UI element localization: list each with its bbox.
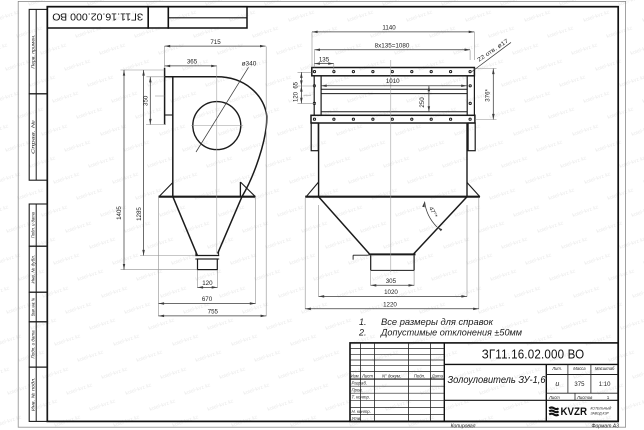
- svg-text:65: 65: [293, 81, 299, 88]
- svg-text:250: 250: [419, 97, 426, 108]
- svg-text:1: 1: [607, 395, 610, 400]
- svg-text:Т. контр.: Т. контр.: [352, 395, 371, 400]
- svg-text:Инв. № дубл.: Инв. № дубл.: [31, 255, 36, 284]
- svg-text:Масштаб: Масштаб: [595, 366, 615, 371]
- svg-text:1285: 1285: [136, 207, 143, 221]
- svg-text:Лит.: Лит.: [551, 366, 562, 371]
- svg-text:Пров.: Пров.: [352, 388, 363, 393]
- svg-text:Подп. и дата: Подп. и дата: [31, 330, 36, 359]
- svg-text:N° докум.: N° докум.: [382, 373, 401, 378]
- svg-text:ЗГ11.16.02.000 ВО: ЗГ11.16.02.000 ВО: [482, 347, 585, 362]
- svg-text:365: 365: [187, 59, 198, 66]
- svg-text:Копировал: Копировал: [451, 423, 476, 429]
- svg-text:и: и: [555, 381, 559, 388]
- svg-text:Золоуловитель ЗУ-1,6: Золоуловитель ЗУ-1,6: [448, 375, 546, 386]
- svg-text:305: 305: [386, 278, 397, 285]
- svg-text:Перв. примен.: Перв. примен.: [31, 35, 36, 69]
- svg-text:Разраб.: Разраб.: [352, 381, 368, 386]
- svg-text:1:10: 1:10: [599, 382, 611, 388]
- svg-text:Утв.: Утв.: [352, 416, 362, 421]
- svg-text:Подп. и дата: Подп. и дата: [31, 211, 36, 238]
- svg-text:120: 120: [294, 91, 300, 102]
- svg-text:ЗГ11.16.02.000 ВО: ЗГ11.16.02.000 ВО: [52, 11, 143, 23]
- svg-text:376*: 376*: [485, 88, 492, 101]
- svg-text:755: 755: [208, 308, 219, 315]
- svg-text:ø340: ø340: [242, 60, 257, 67]
- svg-text:Дата: Дата: [431, 373, 444, 378]
- svg-text:Все размеры для справок: Все размеры для справок: [381, 317, 494, 327]
- svg-text:Допустимые отклонения ±50мм: Допустимые отклонения ±50мм: [380, 327, 522, 337]
- svg-text:1010: 1010: [386, 78, 400, 85]
- svg-text:715: 715: [210, 39, 221, 46]
- svg-text:Лист: Лист: [361, 373, 373, 378]
- svg-text:375: 375: [574, 382, 585, 388]
- svg-text:ЗАВОД КЗР: ЗАВОД КЗР: [591, 412, 610, 416]
- svg-text:Листов: Листов: [576, 395, 593, 400]
- svg-text:8х135=1080: 8х135=1080: [375, 42, 410, 49]
- svg-text:Подп.: Подп.: [414, 373, 425, 378]
- svg-text:Лист: Лист: [548, 395, 560, 400]
- svg-text:2.: 2.: [358, 327, 367, 337]
- svg-text:1140: 1140: [382, 25, 396, 32]
- svg-text:Взам. инв. №: Взам. инв. №: [31, 298, 36, 317]
- svg-text:1020: 1020: [384, 289, 398, 296]
- svg-text:Инв. № подл.: Инв. № подл.: [31, 377, 36, 411]
- svg-text:670: 670: [202, 296, 213, 303]
- svg-text:Н. контр.: Н. контр.: [352, 409, 371, 414]
- svg-text:Изм.: Изм.: [351, 373, 360, 378]
- svg-text:Справ. №: Справ. №: [31, 120, 36, 154]
- svg-text:1220: 1220: [383, 301, 397, 308]
- svg-text:Масса: Масса: [573, 366, 586, 371]
- svg-text:1405: 1405: [116, 206, 123, 220]
- svg-text:135: 135: [319, 56, 330, 63]
- svg-text:120: 120: [202, 280, 213, 287]
- svg-text:1.: 1.: [359, 317, 367, 327]
- svg-text:КОТЕЛЬНЫЙ: КОТЕЛЬНЫЙ: [591, 407, 612, 411]
- svg-text:KVZR: KVZR: [561, 406, 588, 418]
- svg-text:Формат А3: Формат А3: [592, 423, 620, 429]
